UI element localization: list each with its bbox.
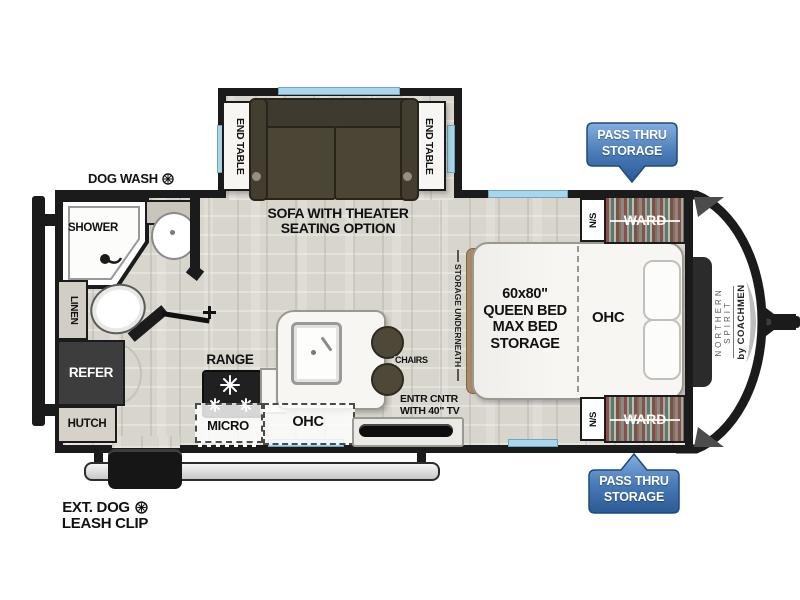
shower — [59, 198, 151, 290]
dog-wash-icon — [162, 173, 174, 185]
bathroom-door-latch-cross — [208, 306, 211, 319]
refer-label: REFER — [69, 366, 113, 380]
pillow-1 — [643, 260, 681, 321]
hutch: HUTCH — [57, 406, 117, 443]
linen-label: LINEN — [67, 296, 78, 325]
rear-bumper — [32, 196, 45, 426]
ward-top-label: WARD — [624, 212, 667, 228]
ward-bottom-label: WARD — [624, 411, 667, 427]
window-slideout-right — [447, 125, 455, 173]
end-table-left-label: END TABLE — [234, 118, 245, 175]
kitchen-sink — [291, 322, 342, 385]
brand-logo: NORTHERN SPIRIT by COACHMEN — [707, 262, 753, 382]
range-label: RANGE — [200, 353, 260, 367]
brand-name-line3: by COACHMEN — [736, 284, 747, 359]
wardrobe-top: WARD — [604, 196, 686, 244]
linen-cabinet: LINEN — [57, 280, 88, 340]
floorplan-canvas: NORTHERN SPIRIT by COACHMEN SHOWER LINEN… — [0, 0, 800, 600]
entry-step — [108, 449, 182, 489]
storage-underneath-text: STORAGE UNDERNEATH — [453, 264, 463, 367]
kitchen-sink-faucet — [311, 350, 316, 355]
shower-label: SHOWER — [68, 222, 118, 234]
bathroom-wall-stub — [190, 198, 200, 274]
refrigerator: REFER — [57, 340, 125, 406]
sofa-armrest-right — [400, 98, 419, 201]
dog-wash-text: DOG WASH — [88, 172, 158, 186]
ext-dog-leash-clip-label: EXT. DOG LEASH CLIP — [0, 500, 210, 532]
sofa-label-line1: SOFA WITH THEATER — [248, 206, 428, 221]
bathroom-sink-faucet — [170, 230, 175, 235]
chairs-label: CHAIRS — [394, 356, 429, 365]
sofa-armrest-left-knob — [252, 172, 261, 181]
sofa-label: SOFA WITH THEATER SEATING OPTION — [248, 206, 428, 235]
pass-thru-storage-badge-bottom: PASS THRU STORAGE — [588, 452, 680, 514]
pillow-2 — [643, 319, 681, 380]
entr-cntr-label-line1: ENTR CNTR — [400, 394, 466, 406]
bed-label: 60x80" QUEEN BED MAX BED STORAGE — [474, 286, 576, 353]
entr-cntr-label: ENTR CNTR WITH 40" TV — [400, 394, 466, 417]
brand-divider — [733, 286, 734, 358]
dog-wash-label: DOG WASH — [88, 172, 174, 186]
window-slideout-top — [278, 87, 400, 95]
bed-label-line2: QUEEN BED — [474, 303, 576, 320]
bed-label-line3: MAX BED — [474, 319, 576, 336]
ns-bottom-label: N/S — [589, 412, 599, 427]
pass-thru-storage-badge-top: PASS THRU STORAGE — [586, 122, 678, 184]
ext-dog-text: EXT. DOG — [62, 500, 130, 516]
leash-clip-icon — [135, 501, 148, 514]
tv — [359, 424, 453, 437]
brand-name-line2: SPIRIT — [723, 300, 732, 344]
window-bedroom-top — [488, 190, 568, 198]
wardrobe-bottom: WARD — [604, 395, 686, 443]
brand-name-line1: NORTHERN — [714, 287, 723, 356]
bed-label-line4: STORAGE — [474, 336, 576, 353]
micro-label: MICRO — [195, 419, 261, 433]
pass-thru-top-line2: STORAGE — [586, 144, 678, 158]
ns-top-label: N/S — [589, 213, 599, 228]
pass-thru-bottom-line2: STORAGE — [588, 490, 680, 504]
sofa-armrest-right-knob — [403, 172, 412, 181]
sofa-armrest-left — [249, 98, 268, 201]
bed-fold-line — [577, 246, 579, 392]
sofa-label-line2: SEATING OPTION — [248, 221, 428, 236]
pass-thru-top-line1: PASS THRU — [586, 128, 678, 142]
leash-clip-text: LEASH CLIP — [0, 516, 210, 532]
window-bedroom-bottom — [508, 439, 558, 447]
pass-thru-bottom-line1: PASS THRU — [588, 474, 680, 488]
chair-2 — [371, 363, 404, 396]
hutch-label: HUTCH — [68, 418, 107, 430]
bed-label-line1: 60x80" — [474, 286, 576, 303]
end-table-right-label: END TABLE — [423, 118, 434, 175]
entry-door-opening — [112, 436, 180, 448]
ohc-kitchen-label: OHC — [263, 415, 353, 430]
ohc-bed-label: OHC — [592, 310, 624, 326]
entr-cntr-label-line2: WITH 40" TV — [400, 406, 466, 418]
